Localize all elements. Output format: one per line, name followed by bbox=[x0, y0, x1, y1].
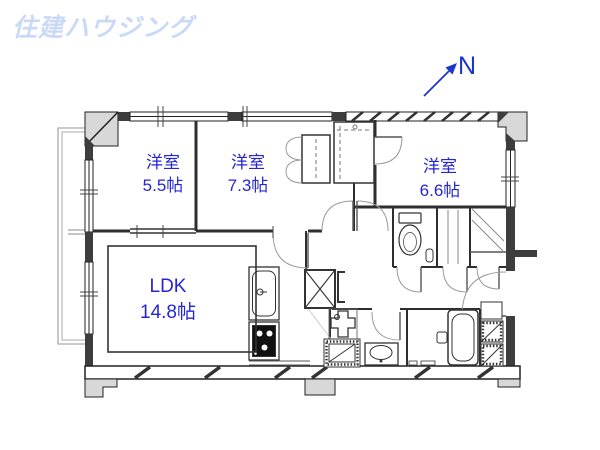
north-label: N bbox=[458, 52, 476, 80]
kitchen-sink-icon bbox=[249, 267, 279, 320]
floorplan-page: 住建ハウジング N bbox=[0, 0, 600, 450]
logo-text: 住建ハウジング bbox=[12, 13, 197, 42]
ldk-area-outline bbox=[108, 246, 256, 352]
room-label-yoshitsu-73-name: 洋室 bbox=[231, 153, 265, 172]
room-label-yoshitsu-55-name: 洋室 bbox=[146, 153, 180, 172]
balcony-outline bbox=[58, 128, 88, 344]
closet-a bbox=[286, 135, 330, 183]
room-label-ldk-name: LDK bbox=[150, 276, 187, 297]
closet-b bbox=[334, 122, 374, 183]
floor-plan-image: 住建ハウジング N bbox=[0, 0, 600, 450]
hall-closet bbox=[448, 210, 458, 264]
north-arrow-icon: N bbox=[424, 52, 476, 96]
room-label-ldk-size: 14.8帖 bbox=[140, 301, 196, 323]
entrance-closet bbox=[470, 209, 506, 252]
stove-icon bbox=[249, 322, 310, 365]
room-label-yoshitsu-66-size: 6.6帖 bbox=[420, 181, 461, 200]
entrance-step bbox=[481, 302, 502, 319]
shoe-box-icon bbox=[481, 321, 503, 366]
washing-machine-icon bbox=[329, 309, 357, 339]
wash-basin-icon bbox=[365, 343, 398, 365]
room-label-yoshitsu-66-name: 洋室 bbox=[423, 157, 457, 176]
laundry-storage-icon bbox=[324, 339, 360, 367]
toilet-icon bbox=[399, 213, 433, 262]
bathtub-icon bbox=[409, 310, 478, 365]
room-label-yoshitsu-55-size: 5.5帖 bbox=[143, 176, 184, 195]
ldk-label: LDK 14.8帖 bbox=[140, 276, 196, 323]
room-label-yoshitsu-73-size: 7.3帖 bbox=[228, 176, 269, 195]
pipe-space-icon bbox=[305, 270, 345, 308]
